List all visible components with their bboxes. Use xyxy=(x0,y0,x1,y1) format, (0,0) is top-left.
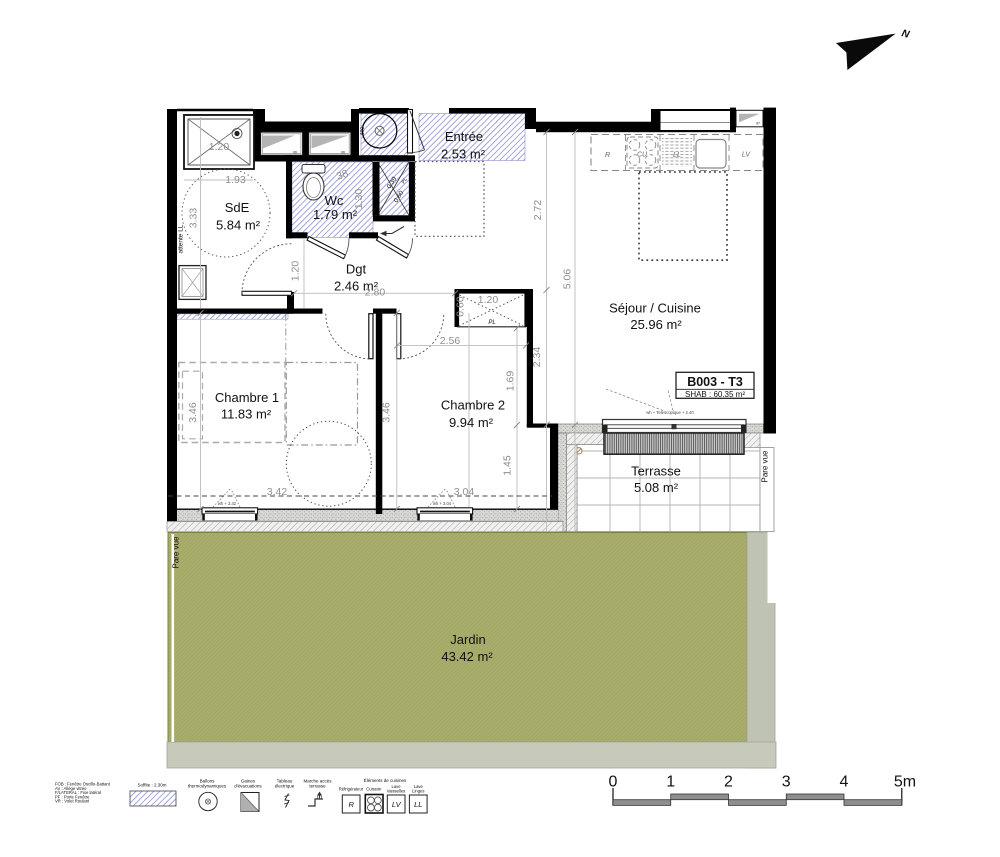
svg-text:LL: LL xyxy=(673,152,681,159)
svg-text:3.46: 3.46 xyxy=(381,402,393,423)
svg-text:0.60: 0.60 xyxy=(455,296,467,317)
svg-text:06: 06 xyxy=(341,151,345,155)
svg-text:Vaisselles: Vaisselles xyxy=(387,789,406,794)
svg-text:attente LL: attente LL xyxy=(178,224,185,253)
svg-text:3.46: 3.46 xyxy=(187,402,199,423)
svg-text:Soffite : 2.30m: Soffite : 2.30m xyxy=(138,783,167,788)
svg-text:07: 07 xyxy=(756,122,760,126)
svg-text:SdE: SdE xyxy=(225,200,250,215)
svg-text:4: 4 xyxy=(840,774,849,791)
svg-text:5.08 m²: 5.08 m² xyxy=(634,480,679,495)
svg-text:1.20: 1.20 xyxy=(290,261,302,282)
svg-text:06: 06 xyxy=(293,151,297,155)
svg-text:Réfrigérateur: Réfrigérateur xyxy=(339,787,364,792)
svg-text:1.79 m²: 1.79 m² xyxy=(313,207,358,222)
svg-text:R: R xyxy=(605,152,610,159)
svg-text:Chambre 2: Chambre 2 xyxy=(441,398,505,413)
svg-text:wh + 3.42: wh + 3.42 xyxy=(218,501,237,506)
svg-text:Chambre 1: Chambre 1 xyxy=(215,390,279,405)
svg-text:terrasse: terrasse xyxy=(309,783,326,788)
svg-text:1.20: 1.20 xyxy=(478,294,499,306)
svg-text:3.04: 3.04 xyxy=(454,486,475,498)
svg-text:1.45: 1.45 xyxy=(502,455,514,476)
svg-text:Terrasse: Terrasse xyxy=(631,464,681,479)
svg-text:25.96 m²: 25.96 m² xyxy=(630,317,682,332)
svg-text:0: 0 xyxy=(609,774,618,791)
svg-text:9.94 m²: 9.94 m² xyxy=(449,415,494,430)
svg-text:Linges: Linges xyxy=(412,789,424,794)
svg-text:PL: PL xyxy=(488,320,495,326)
svg-text:600: 600 xyxy=(360,127,366,136)
svg-text:1.93: 1.93 xyxy=(225,174,246,186)
svg-text:R: R xyxy=(348,800,354,809)
svg-text:2.72: 2.72 xyxy=(532,200,544,221)
svg-text:VR : Volet Roulant: VR : Volet Roulant xyxy=(55,799,90,804)
svg-text:Dgt: Dgt xyxy=(346,262,367,277)
svg-text:B003 - T3: B003 - T3 xyxy=(687,375,743,389)
svg-text:Pare vue: Pare vue xyxy=(760,450,769,483)
svg-text:LL: LL xyxy=(414,800,422,809)
svg-text:2.34: 2.34 xyxy=(531,347,543,368)
svg-text:électrique: électrique xyxy=(275,783,295,788)
svg-text:1.69: 1.69 xyxy=(505,371,517,392)
svg-text:Éléments de cuisines: Éléments de cuisines xyxy=(364,777,407,783)
svg-text:Wc: Wc xyxy=(325,193,344,208)
svg-text:Cuisson: Cuisson xyxy=(366,787,382,792)
svg-text:1.30: 1.30 xyxy=(353,189,365,210)
svg-text:3.42: 3.42 xyxy=(267,486,288,498)
svg-text:2.80: 2.80 xyxy=(365,287,386,299)
svg-text:1: 1 xyxy=(666,774,675,791)
svg-text:43.42 m²: 43.42 m² xyxy=(441,649,493,664)
svg-text:wh + Telescopique + 2.40: wh + Telescopique + 2.40 xyxy=(646,410,694,415)
svg-text:11.83 m²: 11.83 m² xyxy=(221,407,272,422)
svg-text:5m: 5m xyxy=(894,774,916,791)
svg-text:Pare vue: Pare vue xyxy=(172,536,181,569)
svg-text:3.33: 3.33 xyxy=(188,208,200,229)
svg-text:5.84 m²: 5.84 m² xyxy=(216,218,261,233)
svg-text:3: 3 xyxy=(782,774,791,791)
svg-text:d'évacuations: d'évacuations xyxy=(234,783,262,788)
svg-text:CU: CU xyxy=(637,152,648,159)
svg-text:Jardin: Jardin xyxy=(450,632,485,647)
svg-text:5.06: 5.06 xyxy=(562,269,574,290)
svg-text:LV: LV xyxy=(392,800,402,809)
svg-text:LV: LV xyxy=(742,152,752,159)
svg-text:2.53 m²: 2.53 m² xyxy=(441,147,486,162)
svg-text:Séjour / Cuisine: Séjour / Cuisine xyxy=(609,301,701,316)
svg-text:wh + 3.04: wh + 3.04 xyxy=(433,501,452,506)
svg-text:thermodynamiques: thermodynamiques xyxy=(188,783,227,788)
svg-text:2.56: 2.56 xyxy=(440,335,461,347)
svg-text:2: 2 xyxy=(724,774,733,791)
svg-text:Entrée: Entrée xyxy=(445,129,483,144)
svg-text:1.20: 1.20 xyxy=(209,141,230,153)
svg-text:SHAB : 60.35 m²: SHAB : 60.35 m² xyxy=(685,390,745,399)
